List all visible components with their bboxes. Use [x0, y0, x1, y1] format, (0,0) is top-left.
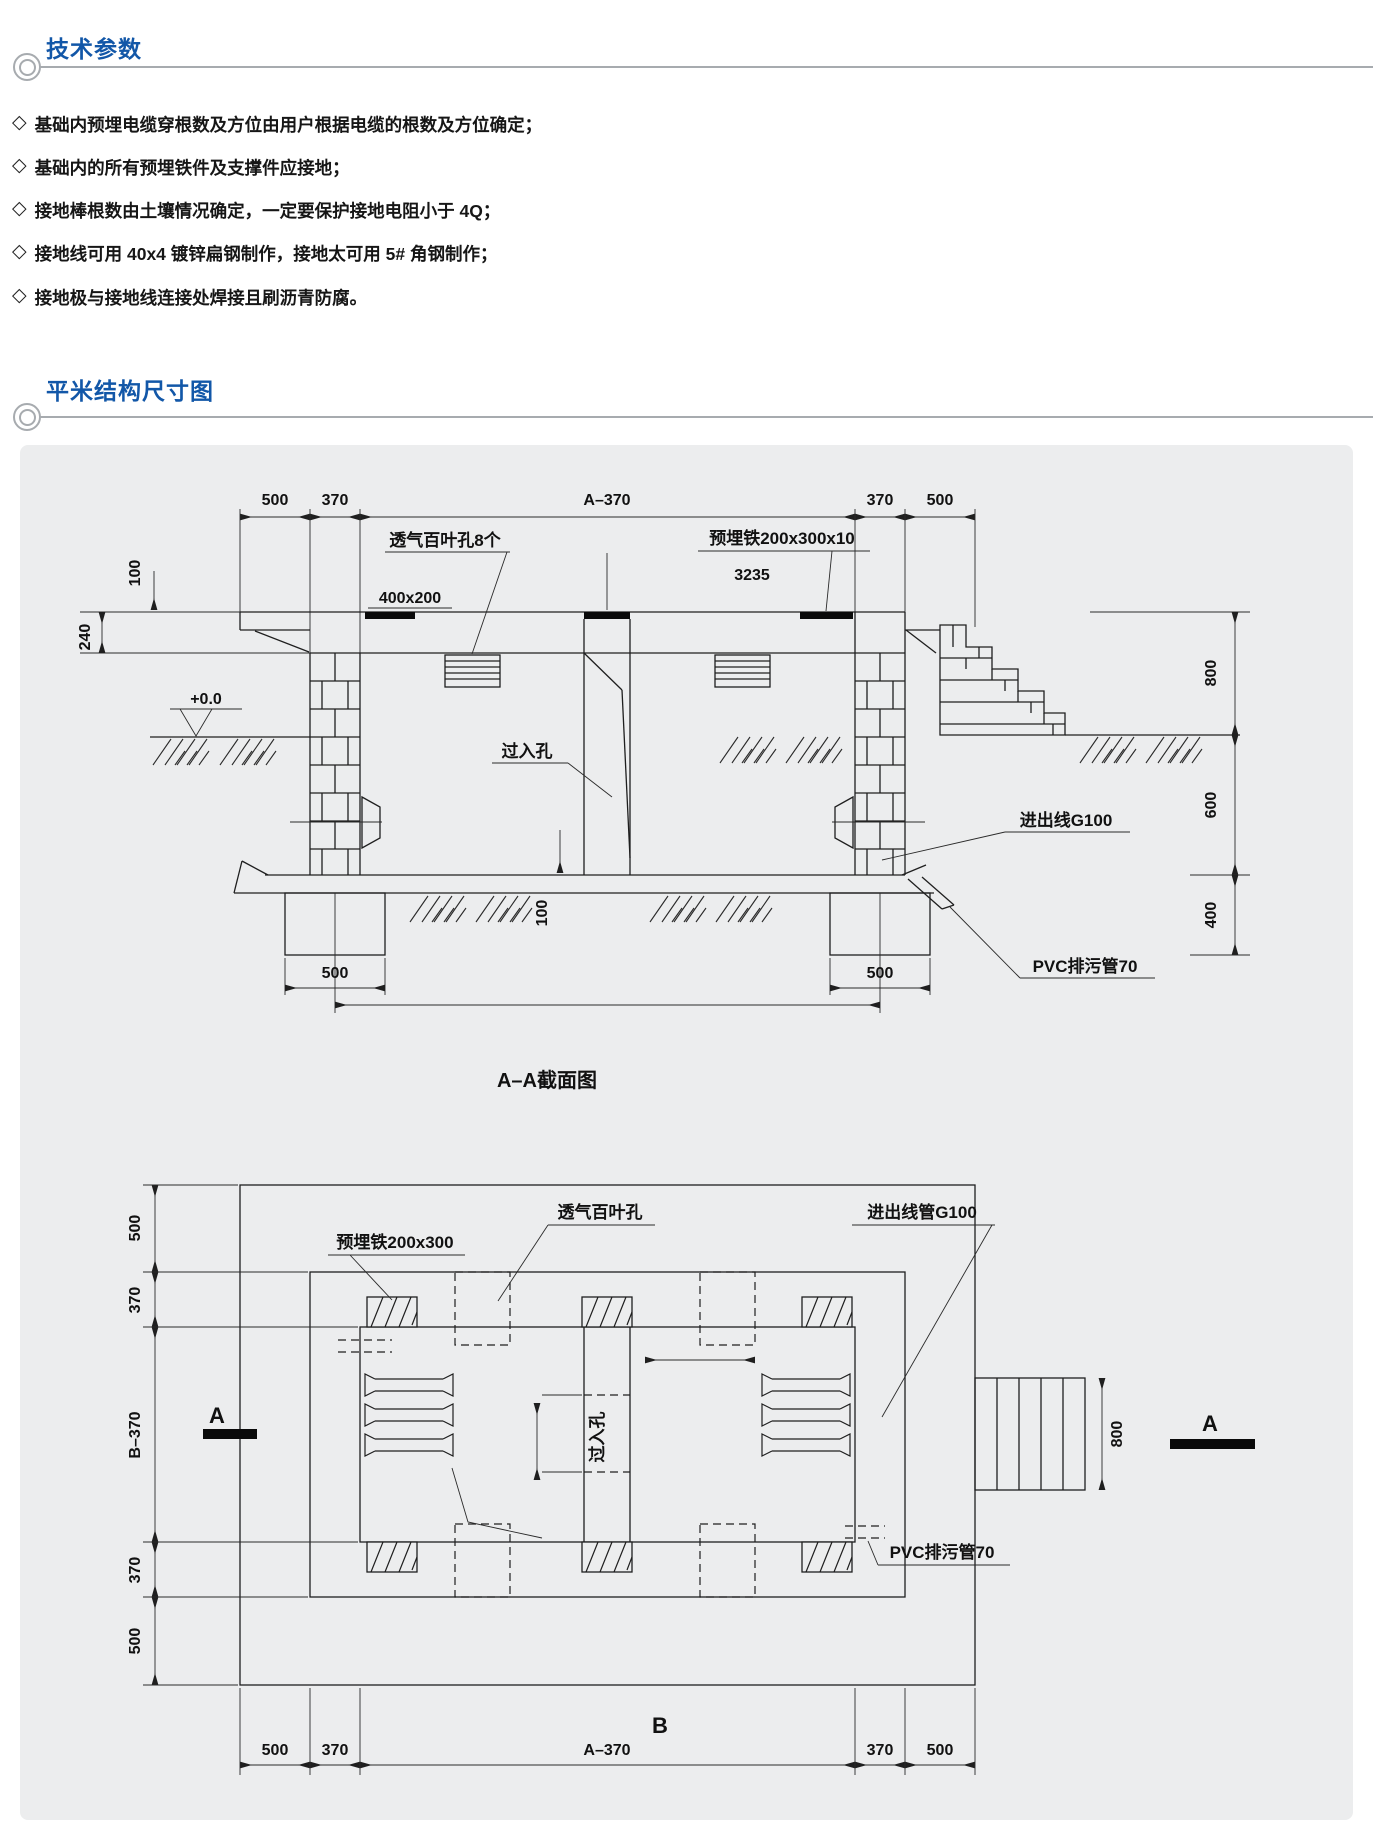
anchor-plate — [802, 1297, 852, 1327]
bullet-item: ◇ 基础内预埋电缆穿根数及方位由用户根据电缆的根数及方位确定； — [12, 112, 542, 137]
right-wall-bricks — [855, 612, 905, 875]
soil-hatch — [716, 896, 772, 922]
cable-rack — [365, 1404, 453, 1426]
section-drawing: 500 370 A–370 370 500 透气百叶孔8个 — [77, 492, 1250, 1092]
plan-wall-inner — [360, 1327, 855, 1542]
title-rule — [40, 66, 1373, 68]
manhole-opening — [537, 1360, 755, 1480]
cable-sleeve-left — [290, 797, 382, 848]
embed-label: 预埋铁200x300x10 — [709, 528, 855, 548]
diamond-icon: ◇ — [12, 241, 27, 264]
drawing-panel: 500 370 A–370 370 500 透气百叶孔8个 — [20, 445, 1353, 1820]
cable-rack — [365, 1374, 453, 1396]
plan-drawing: 预埋铁200x300 透气百叶孔 进出线管G100 过入孔 — [127, 1185, 1255, 1775]
plan-dim-800: 800 — [1109, 1421, 1126, 1448]
louver-opening — [700, 1524, 755, 1597]
manhole-leader — [492, 763, 612, 797]
manhole-label: 过入孔 — [502, 742, 553, 761]
soil-hatch — [410, 896, 466, 922]
right-dim-chain — [1090, 612, 1250, 955]
plan-louver-label: 透气百叶孔 — [558, 1202, 643, 1222]
inout-leader — [882, 832, 1130, 860]
louver-grid — [445, 655, 770, 687]
stepped-bricks — [940, 625, 1065, 735]
soil-hatch — [650, 896, 706, 922]
louver-opening — [455, 1272, 510, 1345]
bullet-item: ◇ 接地棒根数由土壤情况确定，一定要保护接地电阻小于 4Q； — [12, 198, 500, 223]
bullet-item: ◇ 基础内的所有预埋铁件及支撑件应接地； — [12, 155, 350, 180]
vent-size-label: 400x200 — [379, 590, 441, 607]
cable-rack — [365, 1434, 453, 1456]
diamond-icon: ◇ — [12, 285, 27, 308]
anchor-plate — [802, 1542, 852, 1572]
dim-label: 500 — [927, 492, 954, 509]
cable-sleeve-right — [832, 797, 925, 848]
dim-240-label: 240 — [77, 624, 94, 651]
dim-600-label: 600 — [1203, 792, 1220, 819]
section-title: 平米结构尺寸图 — [46, 372, 214, 406]
dim-100-label: 100 — [127, 560, 144, 587]
marker-b: B — [652, 1713, 668, 1738]
louver-opening — [700, 1272, 755, 1345]
dim-label: 500 — [127, 1628, 144, 1655]
marker-a-left: A — [209, 1403, 225, 1428]
document-page: 技术参数 ◇ 基础内预埋电缆穿根数及方位由用户根据电缆的根数及方位确定； ◇ 基… — [0, 0, 1373, 1848]
plan-embed-label: 预埋铁200x300 — [336, 1232, 453, 1252]
marker-a-right: A — [1202, 1411, 1218, 1436]
dim-240 — [80, 612, 310, 653]
title-rule — [40, 416, 1373, 418]
dim-400-label: 400 — [1203, 902, 1220, 929]
section-top-dim-chain — [240, 509, 975, 653]
ring-icon — [13, 53, 41, 81]
soil-hatch — [786, 737, 842, 763]
dim-label: A–370 — [583, 492, 630, 509]
dim-label: 370 — [322, 1742, 349, 1759]
dim-label: 370 — [127, 1557, 144, 1584]
left-wall-bricks — [310, 653, 360, 875]
embed-leader — [698, 551, 870, 611]
footing-dims — [285, 893, 930, 1013]
dim-label: B–370 — [127, 1411, 144, 1458]
plan-pvc-label: PVC排污管70 — [890, 1542, 995, 1562]
bullet-text: 接地极与接地线连接处焊接且刷沥青防腐。 — [35, 285, 368, 310]
extension-box — [975, 1378, 1085, 1490]
plan-inout-leader — [852, 1225, 995, 1417]
section-caption: A–A截面图 — [497, 1068, 597, 1092]
dim-label: 370 — [867, 492, 894, 509]
marker-a-right-bar — [1170, 1439, 1255, 1449]
bullet-text: 基础内预埋电缆穿根数及方位由用户根据电缆的根数及方位确定； — [35, 112, 543, 137]
dim-800-label: 800 — [1203, 660, 1220, 687]
anchor-plate — [582, 1542, 632, 1572]
soil-hatch — [1146, 737, 1202, 763]
bullet-item: ◇ 接地线可用 40x4 镀锌扁钢制作，接地太可用 5# 角钢制作； — [12, 241, 497, 266]
center-partition — [584, 619, 630, 875]
level-label: +0.0 — [190, 691, 222, 708]
diamond-icon: ◇ — [12, 198, 27, 221]
dim-label: A–370 — [583, 1742, 630, 1759]
bullet-text: 接地棒根数由土壤情况确定，一定要保护接地电阻小于 4Q； — [35, 198, 501, 223]
embedded-plate — [584, 612, 630, 619]
cable-rack — [762, 1434, 850, 1456]
louver-opening — [455, 1524, 510, 1597]
level-symbol — [170, 709, 242, 736]
dim-label: 370 — [322, 492, 349, 509]
pvc-label: PVC排污管70 — [1033, 956, 1138, 976]
footing-dim-label: 500 — [322, 965, 349, 982]
ring-icon — [13, 403, 41, 431]
soil-hatch — [476, 896, 532, 922]
soil-hatch — [720, 737, 776, 763]
soil-hatch — [220, 739, 276, 765]
diamond-icon: ◇ — [12, 155, 27, 178]
embed-code: 3235 — [734, 567, 770, 584]
dim-label: 500 — [262, 492, 289, 509]
plan-bottom-dim-chain — [240, 1688, 975, 1775]
plan-outer-rect — [240, 1185, 975, 1685]
dim-label: 370 — [127, 1287, 144, 1314]
bullet-text: 基础内的所有预埋铁件及支撑件应接地； — [35, 155, 350, 180]
dim-label: 370 — [867, 1742, 894, 1759]
soil-hatch — [1080, 737, 1136, 763]
anchor-plate — [582, 1297, 632, 1327]
cad-drawing: 500 370 A–370 370 500 透气百叶孔8个 — [20, 445, 1353, 1820]
cable-rack — [762, 1404, 850, 1426]
soil-hatch — [153, 739, 209, 765]
footing-dim-label: 500 — [867, 965, 894, 982]
plan-manhole-label: 过入孔 — [588, 1412, 607, 1463]
cable-rack — [762, 1374, 850, 1396]
inout-label: 进出线G100 — [1020, 810, 1113, 830]
anchor-plate — [367, 1297, 417, 1327]
dim-label: 500 — [927, 1742, 954, 1759]
floor-slab — [234, 861, 954, 909]
louver-label: 透气百叶孔8个 — [389, 530, 501, 550]
marker-a-left-bar — [203, 1429, 257, 1439]
plan-louver-leader — [498, 1225, 655, 1301]
plan-inout-label: 进出线管G100 — [867, 1202, 977, 1222]
rack-leader — [452, 1468, 542, 1538]
anchor-plate — [367, 1542, 417, 1572]
dim-label: 500 — [262, 1742, 289, 1759]
embedded-plate — [365, 612, 415, 619]
embedded-plate — [800, 612, 853, 619]
plan-embed-leader — [328, 1255, 465, 1300]
dim-label: 500 — [127, 1215, 144, 1242]
bullet-text: 接地线可用 40x4 镀锌扁钢制作，接地太可用 5# 角钢制作； — [35, 241, 498, 266]
diamond-icon: ◇ — [12, 112, 27, 135]
page-title: 技术参数 — [46, 30, 142, 64]
floor-dim-label: 100 — [534, 900, 551, 927]
bullet-item: ◇ 接地极与接地线连接处焊接且刷沥青防腐。 — [12, 285, 367, 310]
